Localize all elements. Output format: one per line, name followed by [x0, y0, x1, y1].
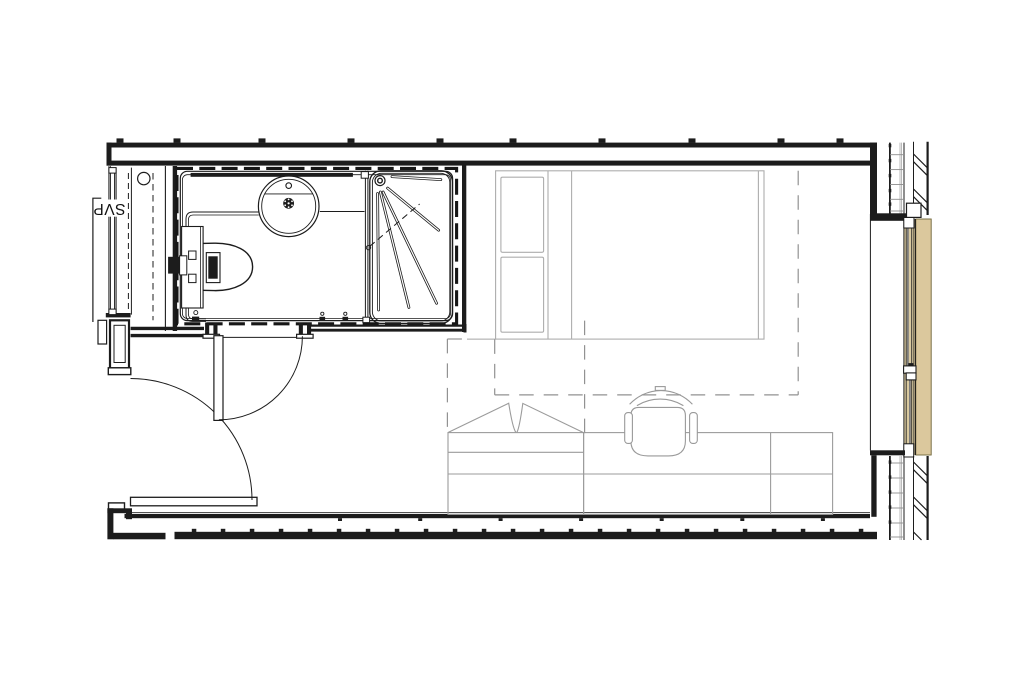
svg-text:SVP: SVP — [93, 200, 126, 217]
